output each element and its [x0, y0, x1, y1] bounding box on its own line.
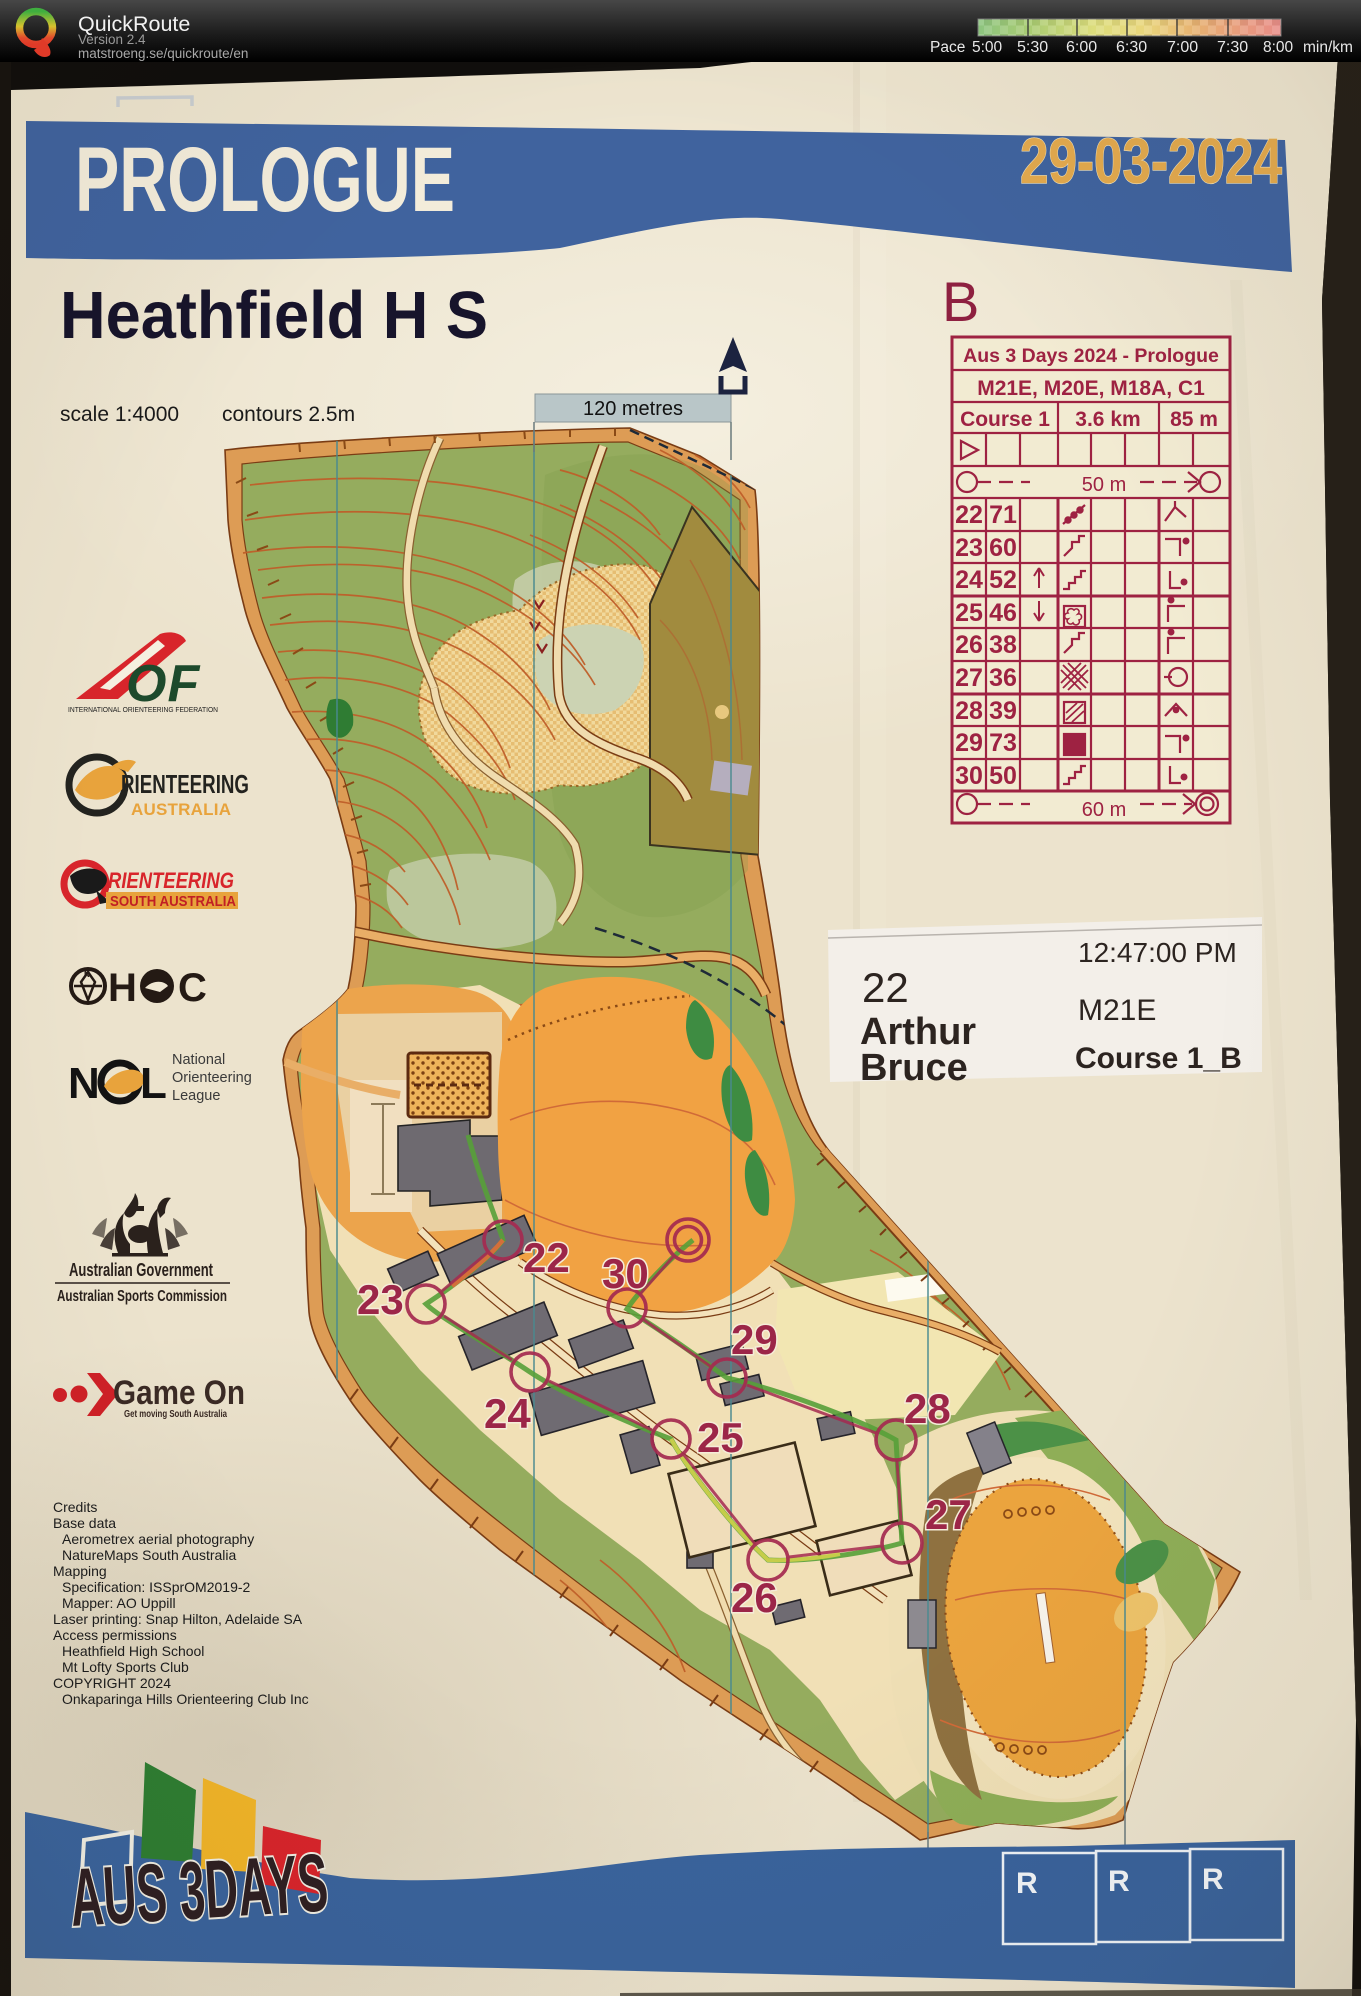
svg-text:6:30: 6:30 — [1116, 39, 1147, 56]
svg-text:7:00: 7:00 — [1167, 39, 1198, 56]
svg-text:5:30: 5:30 — [1017, 39, 1048, 56]
svg-text:6:00: 6:00 — [1066, 39, 1097, 56]
svg-text:8:00: 8:00 — [1263, 39, 1294, 56]
svg-text:Pace: Pace — [930, 39, 965, 56]
svg-text:5:00: 5:00 — [972, 39, 1003, 56]
svg-text:7:30: 7:30 — [1217, 39, 1248, 56]
svg-text:Version 2.4: Version 2.4 — [78, 32, 146, 47]
svg-text:min/km: min/km — [1303, 39, 1353, 56]
svg-text:matstroeng.se/quickroute/en: matstroeng.se/quickroute/en — [78, 46, 248, 61]
